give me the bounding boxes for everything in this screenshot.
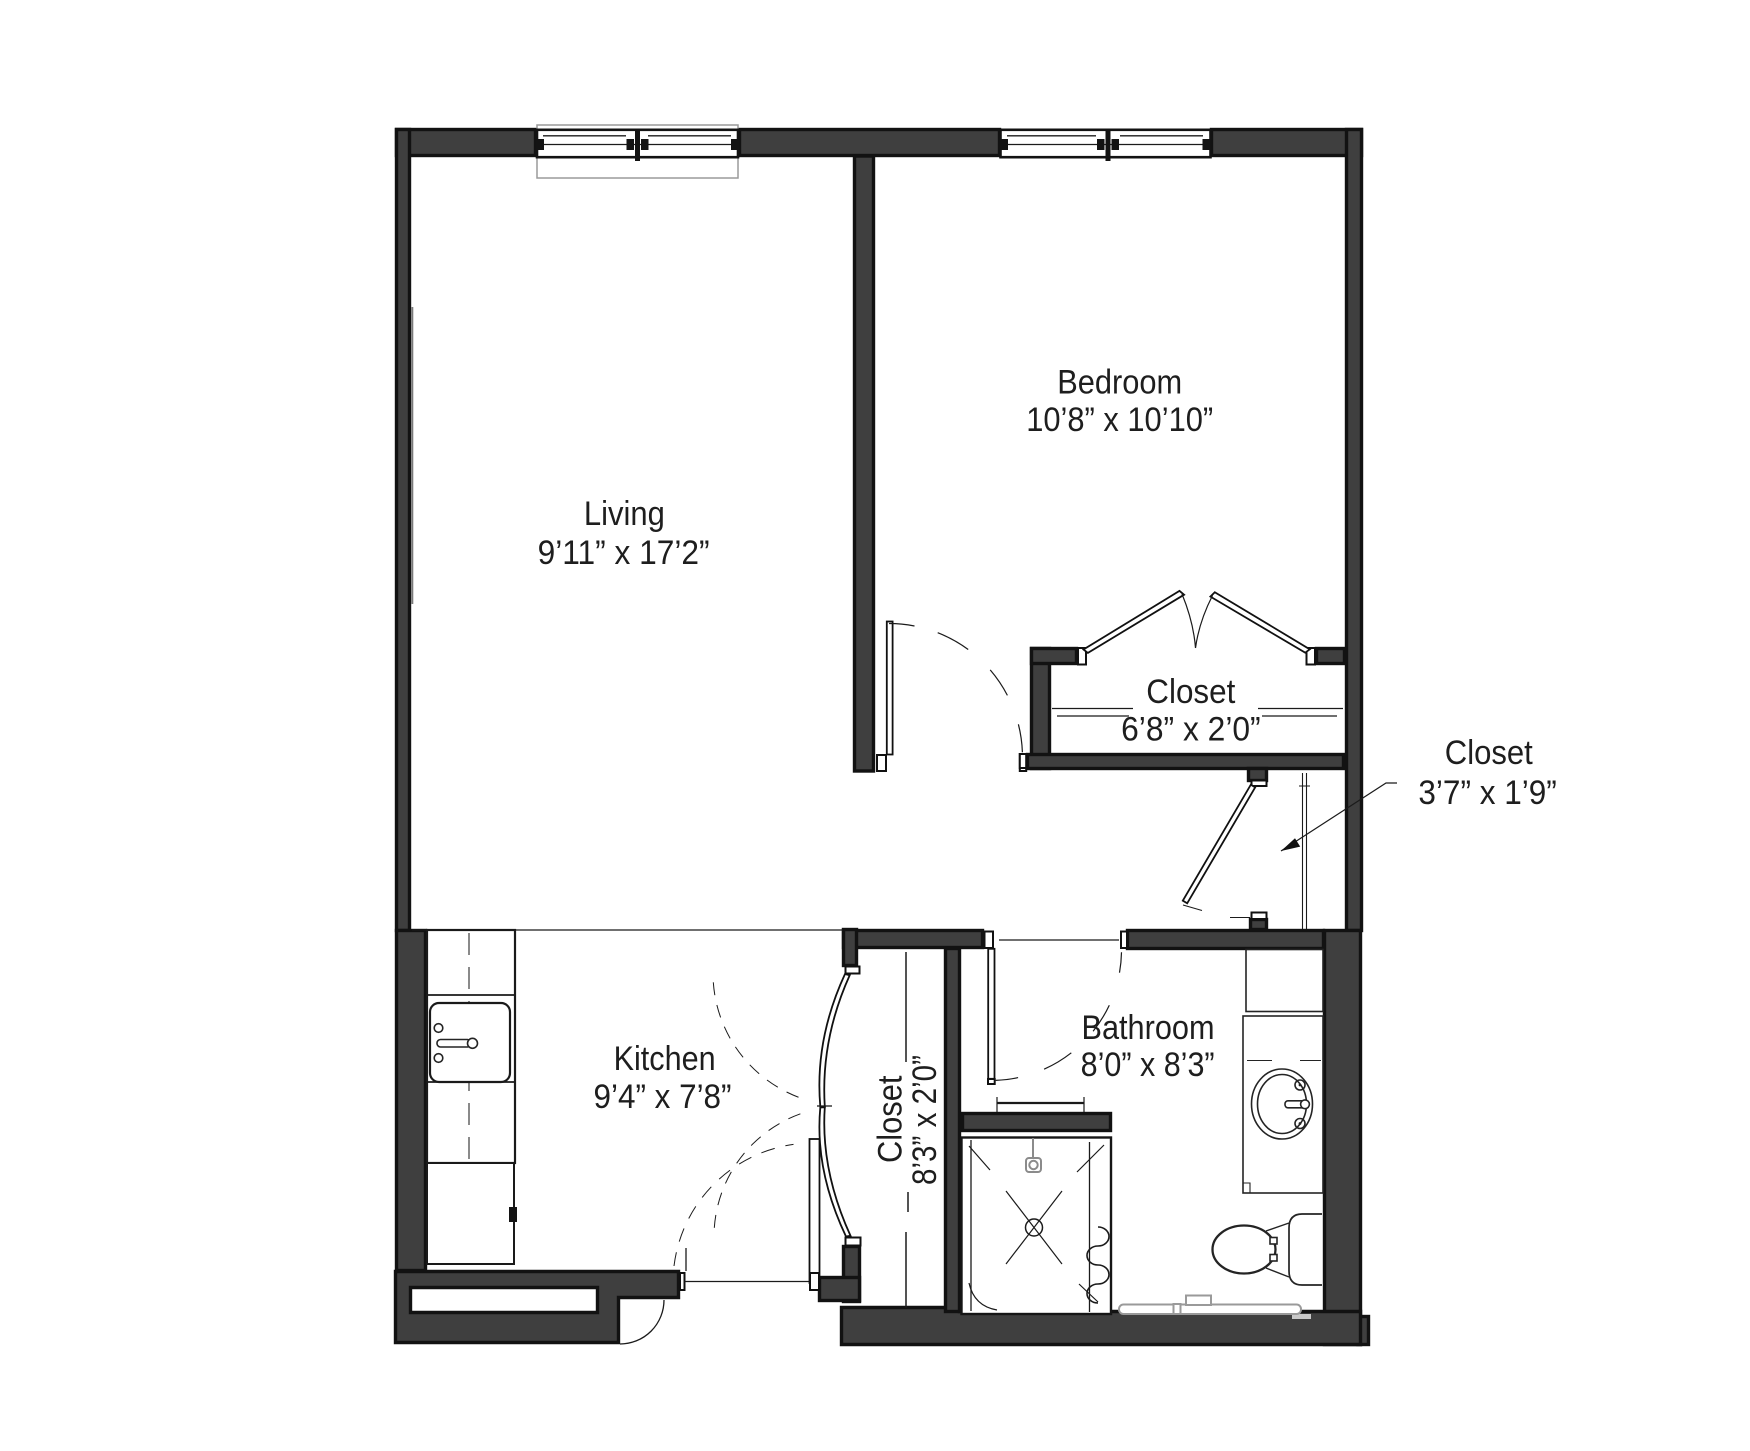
svg-text:3’7” x 1’9”: 3’7” x 1’9” (1418, 774, 1556, 812)
svg-text:10’8” x 10’10”: 10’8” x 10’10” (1026, 401, 1213, 439)
svg-text:8’0” x 8’3”: 8’0” x 8’3” (1081, 1046, 1215, 1084)
svg-text:Closet: Closet (1445, 734, 1534, 772)
svg-text:9’11” x 17’2”: 9’11” x 17’2” (538, 534, 710, 572)
svg-text:Living: Living (584, 495, 665, 533)
svg-text:8’3” x 2’0”: 8’3” x 2’0” (906, 1055, 944, 1185)
svg-text:6’8” x 2’0”: 6’8” x 2’0” (1121, 711, 1261, 749)
svg-text:Bedroom: Bedroom (1057, 363, 1182, 401)
svg-text:9’4” x 7’8”: 9’4” x 7’8” (594, 1078, 732, 1116)
svg-text:Closet: Closet (1146, 673, 1236, 711)
svg-text:Closet: Closet (871, 1075, 909, 1163)
svg-text:Kitchen: Kitchen (614, 1040, 716, 1078)
svg-text:Bathroom: Bathroom (1082, 1009, 1215, 1047)
